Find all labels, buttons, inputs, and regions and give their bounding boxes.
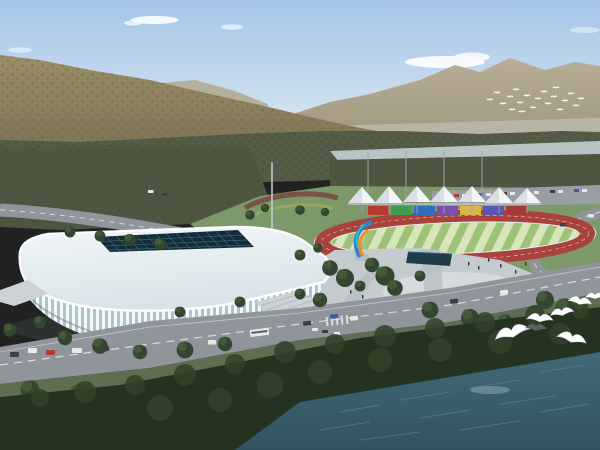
cloud bbox=[124, 21, 142, 26]
cloud bbox=[8, 47, 32, 52]
car bbox=[560, 223, 566, 227]
rendering-image bbox=[0, 0, 600, 450]
car bbox=[28, 348, 37, 353]
stand-block bbox=[391, 206, 412, 215]
car bbox=[46, 350, 55, 355]
car bbox=[208, 340, 216, 345]
water-highlight bbox=[470, 386, 510, 394]
stand-block bbox=[506, 206, 527, 215]
stand-block bbox=[483, 206, 504, 215]
car bbox=[330, 314, 338, 319]
car bbox=[162, 193, 168, 196]
car bbox=[350, 316, 358, 321]
cloud bbox=[570, 27, 600, 33]
car bbox=[588, 214, 594, 218]
rainbow-stand-wall bbox=[368, 206, 527, 215]
cloud bbox=[221, 24, 243, 30]
car bbox=[148, 190, 154, 193]
car bbox=[72, 348, 82, 353]
stand-block bbox=[368, 206, 389, 215]
car bbox=[303, 321, 311, 326]
car bbox=[10, 352, 19, 357]
cloud bbox=[454, 53, 490, 62]
stand-block bbox=[460, 206, 481, 215]
stand-block bbox=[437, 206, 458, 215]
